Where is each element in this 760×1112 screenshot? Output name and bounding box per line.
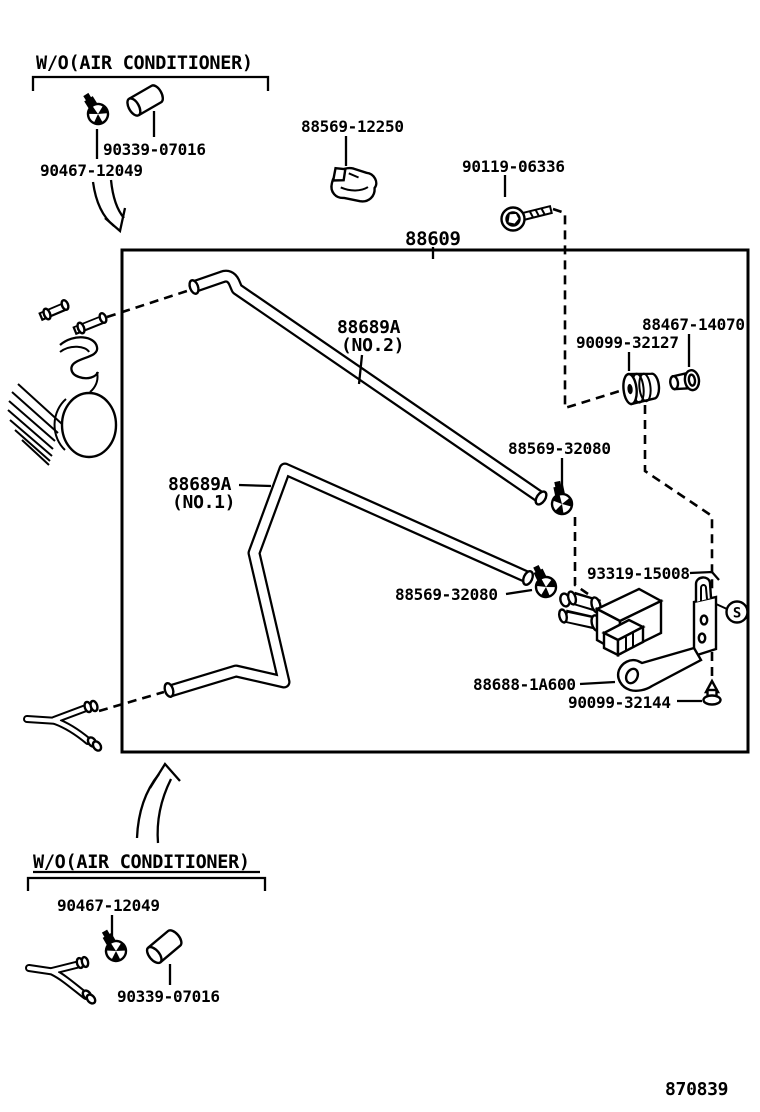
cap-icon: [144, 928, 184, 966]
parts-diagram-canvas: W/O(AIR CONDITIONER) 90339-07016 90467-1…: [0, 0, 760, 1112]
part-label-clamp-upper: 88569-32080: [508, 439, 611, 458]
hose-no2: [188, 276, 549, 506]
part-label-bracket: 88688-1A600: [473, 675, 576, 694]
grommet-icon: [622, 371, 660, 405]
part-label-bushing: 88467-14070: [642, 315, 745, 334]
part-label-cap-bottom: 90339-07016: [117, 987, 220, 1006]
part-label-clamp-bottom: 90467-12049: [57, 896, 160, 915]
clamp-icon: [533, 563, 557, 598]
variant-bottom-title: W/O(AIR CONDITIONER): [33, 852, 250, 873]
part-label-bolt: 90119-06336: [462, 157, 565, 176]
variant-top-title: W/O(AIR CONDITIONER): [36, 53, 253, 74]
assembly-number-label: 88609: [405, 228, 461, 250]
y-pipe-mid: [27, 700, 103, 752]
screw-icon: [704, 681, 721, 705]
part-label-valve: 93319-15008: [587, 564, 690, 583]
part-label-clip: 88569-12250: [301, 117, 404, 136]
leader-line: [239, 485, 271, 486]
part-label-clamp-lower: 88569-32080: [395, 585, 498, 604]
hose1-label-line2: (NO.1): [172, 492, 235, 513]
part-label-cap-top: 90339-07016: [103, 140, 206, 159]
part-label-clamp-top: 90467-12049: [40, 161, 143, 180]
cap-icon: [125, 83, 166, 117]
bushing-icon: [669, 369, 700, 393]
screw-symbol: S: [727, 602, 748, 623]
arrow-down-icon: [93, 180, 125, 231]
variant-bottom-bracket: [28, 878, 265, 891]
y-pipe-bottom: [29, 956, 97, 1005]
bolt-icon: [502, 205, 553, 230]
arrow-up-icon: [137, 764, 180, 843]
parts-diagram-page: W/O(AIR CONDITIONER) 90339-07016 90467-1…: [0, 0, 760, 1112]
screw-symbol-letter: S: [733, 606, 741, 622]
hose2-label-line2: (NO.2): [341, 335, 404, 356]
leader-line: [506, 590, 532, 594]
engine-stub: [8, 299, 116, 465]
drawing-number: 870839: [665, 1079, 728, 1100]
leader-line: [580, 682, 615, 684]
part-label-grommet: 90099-32127: [576, 333, 679, 352]
clip-icon: [326, 157, 381, 209]
clamp-icon: [83, 90, 110, 126]
clamp-icon: [101, 927, 127, 963]
part-label-screw: 90099-32144: [568, 693, 671, 712]
valve-icon: [558, 589, 661, 655]
